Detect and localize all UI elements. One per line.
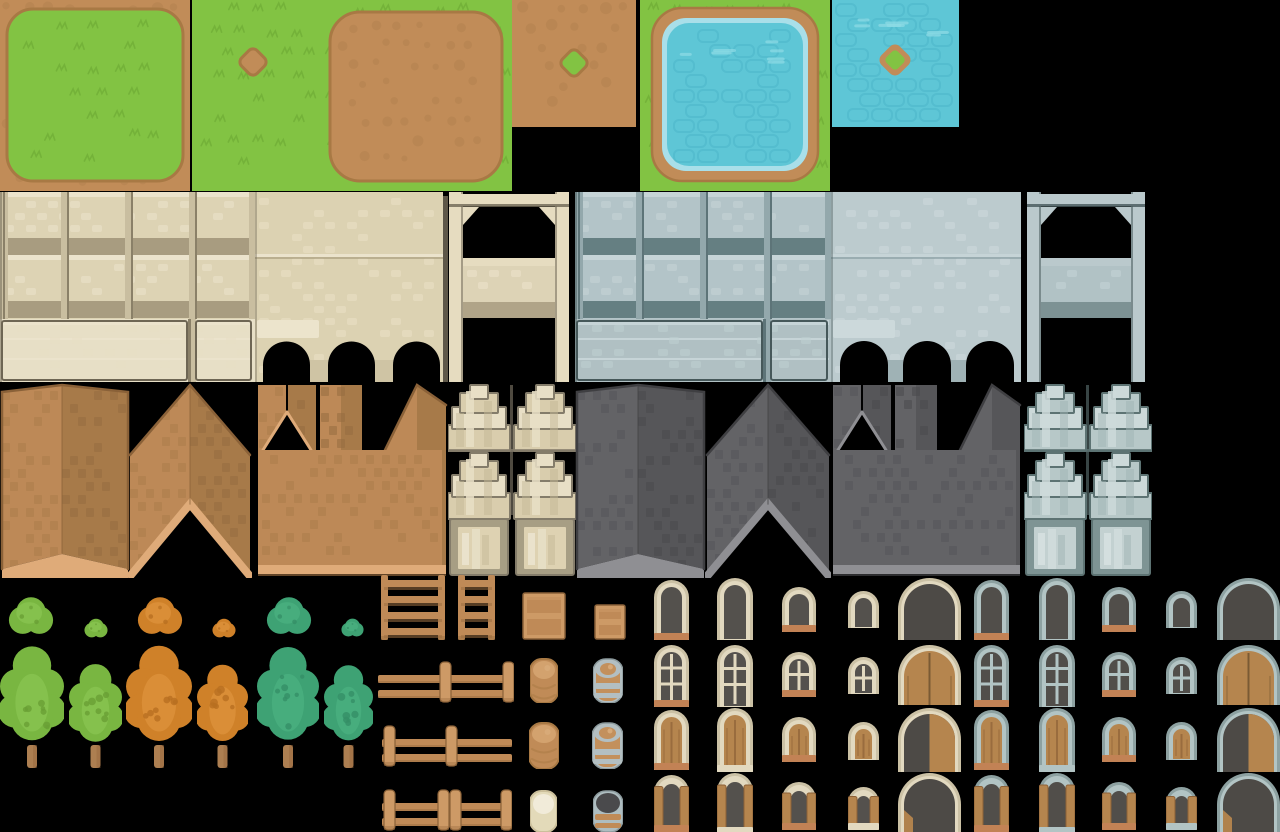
gray-bay-facade-tile-art (1024, 383, 1152, 578)
fence-double-post-sprite-art (382, 788, 512, 832)
gray-window-open-tall-art (1039, 773, 1075, 832)
barrel-iron-tall-sprite-art (592, 721, 623, 769)
cream-window-tall-sill-art (654, 580, 689, 640)
cream-window-pane-tall-art (717, 645, 753, 707)
brown-roof-chevron-tile[interactable] (128, 383, 252, 578)
gray-window-shut-small-art (1166, 722, 1197, 760)
cream-wall-panels-tile[interactable] (0, 192, 255, 382)
cream-window-shut-tall-art (717, 708, 753, 772)
pond-tile[interactable] (640, 0, 830, 191)
gray-window-shut-sill-art (974, 710, 1009, 770)
water-island-tile[interactable] (832, 0, 959, 127)
cream-window-tall-sill[interactable] (654, 580, 689, 640)
gray-window-pane-small-art (1166, 657, 1197, 694)
cream-window-shut-sill-art (654, 710, 689, 770)
cream-door-open-art (898, 773, 961, 832)
green-bush-small-sprite-art (84, 618, 108, 639)
teal-tree-large-sprite[interactable] (257, 645, 319, 768)
gray-roof-castle-tile[interactable] (831, 383, 1022, 578)
cream-window-shut-small-art (848, 722, 879, 760)
gray-window-shut-tall[interactable] (1039, 708, 1075, 772)
cream-window-open-mid[interactable] (782, 782, 816, 830)
cream-window-pane-tall[interactable] (717, 645, 753, 707)
gray-door-open[interactable] (1217, 773, 1280, 832)
gray-window-pane-tall-art (1039, 645, 1075, 707)
cream-wall-panels-tile-art (0, 192, 255, 382)
gray-window-shut-tall-art (1039, 708, 1075, 772)
orange-bush-large-sprite[interactable] (137, 594, 183, 639)
fence-left-posts-sprite-art (382, 724, 512, 768)
gray-window-mid-sill-art (1102, 587, 1136, 632)
barrel-iron-band-sprite-art (593, 657, 623, 703)
pond-tile-art (640, 0, 830, 191)
barrel-brown-tall-sprite-art (529, 721, 559, 769)
brown-roof-tower-tile-art (0, 383, 130, 578)
orange-tree-small-sprite-art (197, 663, 248, 768)
fence-left-posts-sprite[interactable] (382, 724, 512, 768)
gray-door-half-open[interactable] (1217, 708, 1280, 772)
gray-window-open-mid-art (1102, 782, 1136, 830)
fence-right-posts-sprite-art (378, 660, 514, 703)
green-tree-small-sprite-art (69, 663, 122, 768)
gray-window-pane-mid[interactable] (1102, 652, 1136, 697)
cream-archway-dark-art (898, 578, 961, 640)
gray-window-mid-sill[interactable] (1102, 587, 1136, 632)
cream-wall-gate-tile-art (443, 192, 575, 382)
crate-large-sprite[interactable] (522, 592, 566, 640)
cream-window-open-small[interactable] (848, 787, 879, 830)
cream-window-tall-art (717, 578, 753, 640)
cream-window-shut-mid-art (782, 717, 816, 762)
gray-wall-arches-tile-art (831, 192, 1021, 382)
gray-window-small[interactable] (1166, 591, 1197, 628)
gray-window-tall-art (1039, 578, 1075, 640)
cream-window-pane-sill-art (654, 645, 689, 707)
cream-window-open-mid-art (782, 782, 816, 830)
gray-window-pane-sill[interactable] (974, 645, 1009, 707)
crate-large-sprite-art (522, 592, 566, 640)
gray-window-tall-sill-art (974, 580, 1009, 640)
cream-wall-arches-tile[interactable] (255, 192, 443, 382)
orange-bush-small-sprite[interactable] (212, 618, 236, 639)
gray-window-pane-sill-art (974, 645, 1009, 707)
cream-window-small[interactable] (848, 591, 879, 628)
gray-roof-chevron-tile-art (705, 383, 831, 578)
dirt-patch-on-grass-tile-art (320, 0, 512, 191)
cream-window-mid-sill[interactable] (782, 587, 816, 632)
teal-bush-large-sprite-art (266, 594, 312, 639)
gray-window-tall[interactable] (1039, 578, 1075, 640)
gray-roof-chevron-tile[interactable] (705, 383, 831, 578)
gray-window-open-sill-art (974, 775, 1009, 832)
crate-small-sprite-art (594, 604, 626, 640)
teal-tree-small-sprite-art (324, 663, 373, 768)
crate-small-sprite[interactable] (594, 604, 626, 640)
fence-right-posts-sprite[interactable] (378, 660, 514, 703)
ladder-narrow-sprite-art (457, 575, 496, 640)
gray-window-pane-small[interactable] (1166, 657, 1197, 694)
cream-window-shut-sill[interactable] (654, 710, 689, 770)
cream-wall-arches-tile-art (255, 192, 443, 382)
fence-double-post-sprite[interactable] (382, 788, 512, 832)
ladder-wide-sprite[interactable] (380, 575, 446, 640)
barrel-cream-sprite[interactable] (530, 789, 557, 832)
gray-window-open-small-art (1166, 787, 1197, 830)
cream-door-open[interactable] (898, 773, 961, 832)
gray-window-open-tall[interactable] (1039, 773, 1075, 832)
cream-window-pane-mid-art (782, 652, 816, 697)
green-tree-small-sprite[interactable] (69, 663, 122, 768)
ladder-narrow-sprite[interactable] (457, 575, 496, 640)
gray-window-small-art (1166, 591, 1197, 628)
gray-window-open-small[interactable] (1166, 787, 1197, 830)
grass-island-tile-art (0, 0, 190, 191)
barrel-iron-tall-sprite[interactable] (592, 721, 623, 769)
barrel-iron-band-sprite[interactable] (593, 657, 623, 703)
brown-roof-castle-tile[interactable] (256, 383, 448, 578)
cream-window-open-tall-art (717, 773, 753, 832)
dirt-patch-on-grass-tile[interactable] (320, 0, 512, 191)
cream-window-pane-sill[interactable] (654, 645, 689, 707)
ladder-wide-sprite-art (380, 575, 446, 640)
cream-window-open-tall[interactable] (717, 773, 753, 832)
cream-door-double[interactable] (898, 645, 961, 705)
barrel-brown-tall-sprite[interactable] (529, 721, 559, 769)
cream-archway-dark[interactable] (898, 578, 961, 640)
grass-dirt-spot-tile-art (192, 0, 320, 191)
cream-window-pane-small[interactable] (848, 657, 879, 694)
barrel-cream-sprite-art (530, 789, 557, 832)
gray-roof-tower-tile[interactable] (575, 383, 706, 578)
cream-window-open-sill-art (654, 775, 689, 832)
gray-window-pane-tall[interactable] (1039, 645, 1075, 707)
cream-window-pane-small-art (848, 657, 879, 694)
gray-wall-panels-tile[interactable] (575, 192, 831, 382)
gray-window-open-sill[interactable] (974, 775, 1009, 832)
cream-door-half-open-art (898, 708, 961, 772)
gray-door-open-art (1217, 773, 1280, 832)
gray-door-double-art (1217, 645, 1280, 705)
barrel-open-sprite-art (593, 789, 623, 832)
cream-window-mid-sill-art (782, 587, 816, 632)
cream-window-shut-small[interactable] (848, 722, 879, 760)
gray-window-shut-mid-art (1102, 717, 1136, 762)
brown-roof-tower-tile[interactable] (0, 383, 130, 578)
green-bush-large-sprite[interactable] (8, 594, 54, 639)
gray-archway-dark[interactable] (1217, 578, 1280, 640)
gray-wall-gate-tile[interactable] (1021, 192, 1151, 382)
gray-roof-tower-tile-art (575, 383, 706, 578)
gray-window-tall-sill[interactable] (974, 580, 1009, 640)
gray-wall-gate-tile-art (1021, 192, 1151, 382)
gray-wall-panels-tile-art (575, 192, 831, 382)
teal-tree-large-sprite-art (257, 645, 319, 768)
gray-archway-dark-art (1217, 578, 1280, 640)
cream-window-small-art (848, 591, 879, 628)
barrel-brown-sprite-art (530, 657, 558, 703)
teal-bush-small-sprite[interactable] (341, 618, 364, 638)
orange-tree-large-sprite[interactable] (126, 645, 192, 768)
gray-window-shut-small[interactable] (1166, 722, 1197, 760)
gray-roof-castle-tile-art (831, 383, 1022, 578)
teal-tree-small-sprite[interactable] (324, 663, 373, 768)
gray-bay-facade-tile[interactable] (1024, 383, 1152, 578)
dirt-grass-spot-tile[interactable] (512, 0, 636, 127)
teal-bush-small-sprite-art (341, 618, 364, 638)
gray-door-half-open-art (1217, 708, 1280, 772)
gray-window-open-mid[interactable] (1102, 782, 1136, 830)
green-bush-small-sprite[interactable] (84, 618, 108, 639)
cream-wall-gate-tile[interactable] (443, 192, 575, 382)
barrel-open-sprite[interactable] (593, 789, 623, 832)
cream-window-pane-mid[interactable] (782, 652, 816, 697)
tileset-sheet (0, 0, 1280, 832)
brown-roof-chevron-tile-art (128, 383, 252, 578)
green-bush-large-sprite-art (8, 594, 54, 639)
barrel-brown-sprite[interactable] (530, 657, 558, 703)
cream-window-open-small-art (848, 787, 879, 830)
teal-bush-large-sprite[interactable] (266, 594, 312, 639)
gray-window-pane-mid-art (1102, 652, 1136, 697)
grass-dirt-spot-tile[interactable] (192, 0, 320, 191)
cream-door-double-art (898, 645, 961, 705)
cream-window-open-sill[interactable] (654, 775, 689, 832)
orange-bush-large-sprite-art (137, 594, 183, 639)
cream-window-shut-tall[interactable] (717, 708, 753, 772)
green-tree-large-sprite[interactable] (0, 645, 64, 768)
cream-window-tall[interactable] (717, 578, 753, 640)
grass-island-tile[interactable] (0, 0, 190, 191)
cream-window-shut-mid[interactable] (782, 717, 816, 762)
cream-door-half-open[interactable] (898, 708, 961, 772)
water-island-tile-art (832, 0, 959, 127)
green-tree-large-sprite-art (0, 645, 64, 768)
cream-bay-facade-tile[interactable] (448, 383, 576, 578)
orange-tree-small-sprite[interactable] (197, 663, 248, 768)
orange-tree-large-sprite-art (126, 645, 192, 768)
gray-window-shut-mid[interactable] (1102, 717, 1136, 762)
cream-bay-facade-tile-art (448, 383, 576, 578)
gray-door-double[interactable] (1217, 645, 1280, 705)
brown-roof-castle-tile-art (256, 383, 448, 578)
gray-window-shut-sill[interactable] (974, 710, 1009, 770)
orange-bush-small-sprite-art (212, 618, 236, 639)
gray-wall-arches-tile[interactable] (831, 192, 1021, 382)
dirt-grass-spot-tile-art (512, 0, 636, 127)
